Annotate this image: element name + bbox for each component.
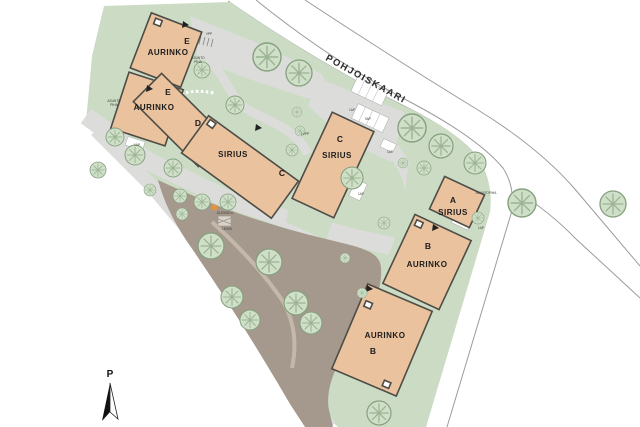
north-arrow-dark-half xyxy=(102,383,110,421)
north-arrow-light-half xyxy=(110,383,118,419)
annotation-piha: PIHA xyxy=(194,60,202,64)
annotation-1ap: 1AP xyxy=(349,108,355,112)
tree-icon xyxy=(106,128,124,146)
tree-icon xyxy=(194,194,210,210)
building-name: SIRIUS xyxy=(218,150,248,159)
tree-icon xyxy=(398,114,426,142)
tree-icon xyxy=(464,152,486,174)
annotation-leikki: LEIKKI xyxy=(222,227,232,231)
annotation-piha: PIHA xyxy=(110,103,118,107)
tree-icon xyxy=(198,233,224,259)
tree-icon xyxy=(429,134,453,158)
building-letter: A xyxy=(450,195,456,205)
annotation-9ap: 9AP xyxy=(365,117,371,121)
tree-icon xyxy=(240,310,260,330)
tree-icon xyxy=(194,62,210,78)
site-plan-canvas: POHJOISKAARI E AURINKO E AURINKO D SIRIU… xyxy=(0,0,640,427)
tree-icon xyxy=(90,162,106,178)
building-name: AURINKO xyxy=(407,260,448,269)
tree-icon xyxy=(253,43,281,71)
annotation-1ap: 1AP xyxy=(358,192,364,196)
building-letter: C xyxy=(279,168,285,178)
tree-icon xyxy=(357,288,367,298)
building-letter: D xyxy=(195,118,201,128)
annotation-1ap: 1AP xyxy=(134,143,140,147)
annotation-1ap: 1AP xyxy=(478,226,484,230)
tree-icon xyxy=(221,286,243,308)
site-plan-drawing: POHJOISKAARI E AURINKO E AURINKO D SIRIU… xyxy=(0,0,640,427)
building-name: AURINKO xyxy=(365,331,406,340)
annotation-1ap: 1AP xyxy=(387,150,393,154)
annotation-1vpp: 1VPP xyxy=(301,132,309,136)
tree-icon xyxy=(220,194,236,210)
building-name: AURINKO xyxy=(148,48,189,57)
annotation-vpp: VPP xyxy=(206,32,212,36)
tree-icon xyxy=(125,145,145,165)
tree-icon xyxy=(378,217,390,229)
annotation-oleskelu: OLESKELU xyxy=(217,211,235,215)
building-name: AURINKO xyxy=(134,103,175,112)
tree-icon xyxy=(340,253,350,263)
tree-icon xyxy=(367,401,391,425)
tree-icon xyxy=(164,159,182,177)
building-letter: C xyxy=(337,134,343,144)
building-letter: E xyxy=(165,87,171,97)
building-name: SIRIUS xyxy=(438,208,468,217)
north-arrow-label: P xyxy=(107,369,114,380)
lounge-marker xyxy=(212,205,217,210)
tree-icon xyxy=(398,158,408,168)
tree-icon xyxy=(286,144,298,156)
tree-icon xyxy=(284,291,308,315)
tree-icon xyxy=(226,96,244,114)
tree-icon xyxy=(508,189,536,217)
tree-icon xyxy=(300,312,322,334)
north-arrow: P xyxy=(102,369,118,421)
tree-icon xyxy=(292,107,302,117)
tree-icon xyxy=(173,189,187,203)
play-area xyxy=(218,216,231,226)
building-name: SIRIUS xyxy=(322,151,352,160)
tree-icon xyxy=(472,212,484,224)
tree-icon xyxy=(600,191,626,217)
tree-icon xyxy=(256,249,282,275)
building-letter: E xyxy=(184,36,190,46)
tree-icon xyxy=(286,60,312,86)
tree-icon xyxy=(176,208,188,220)
tree-icon xyxy=(417,161,431,175)
tree-icon xyxy=(341,167,363,189)
tree-icon xyxy=(144,184,156,196)
annotation-asuntopiha: ASUNTOPIHA xyxy=(476,191,498,195)
building-letter: B xyxy=(425,241,431,251)
building-letter: B xyxy=(370,346,376,356)
